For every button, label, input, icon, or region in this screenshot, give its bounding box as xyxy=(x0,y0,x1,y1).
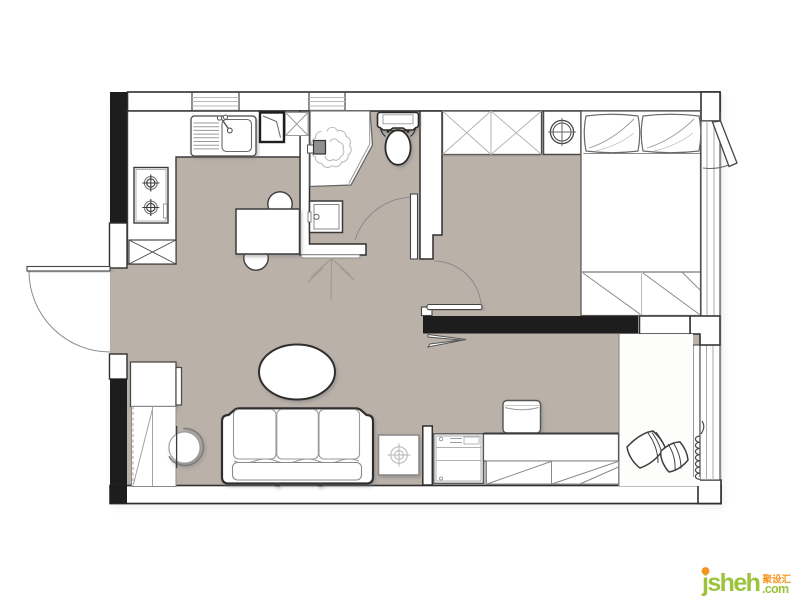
svg-text:jsheh: jsheh xyxy=(701,569,760,596)
svg-text:聚设汇: 聚设汇 xyxy=(762,574,792,586)
